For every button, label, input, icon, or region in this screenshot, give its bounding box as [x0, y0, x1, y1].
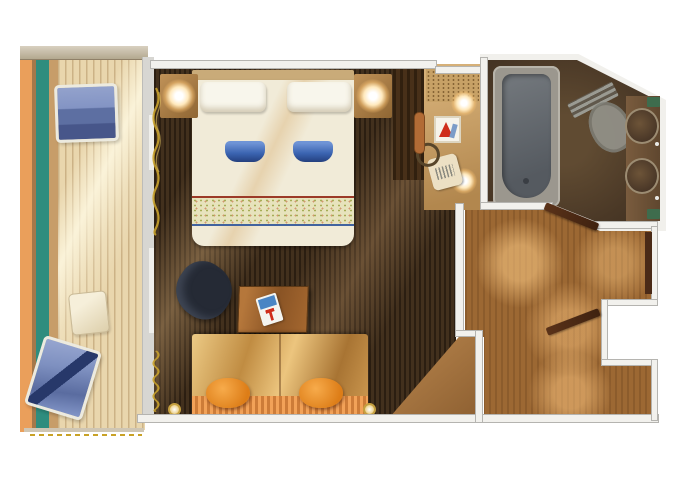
cabinet-knob: [655, 196, 659, 200]
cabinet-knob: [655, 142, 659, 146]
balcony-top-partition: [20, 46, 148, 60]
wall-vanity-bathroom: [480, 57, 488, 210]
green-towel-top: [647, 97, 660, 107]
vanity-lamp-top: [451, 90, 477, 116]
closet-door: [645, 232, 652, 294]
blue-towel-left: [225, 141, 265, 162]
bed-runner: [192, 196, 354, 226]
curtain-decoration-top: [150, 86, 162, 236]
balcony-threshold-dashes: [30, 434, 142, 436]
wall-hallway-right-mid: [601, 299, 608, 365]
wall-top-cabin: [150, 60, 437, 69]
wall-bottom: [137, 414, 659, 423]
writing-desk: [237, 286, 309, 333]
framed-picture: [434, 116, 461, 143]
wall-top-vanity: [435, 66, 485, 74]
vanity-nook: [424, 64, 481, 210]
lamp-left: [162, 79, 196, 113]
magazine: [255, 292, 283, 326]
blue-towel-right: [293, 141, 333, 162]
wall-hallway-step: [602, 299, 658, 306]
lamp-right: [356, 79, 390, 113]
sofa-cushion-split: [279, 334, 281, 396]
wall-corridor-left: [475, 330, 483, 423]
sofa: [192, 334, 368, 418]
balcony-outer-rail-stripe: [20, 55, 32, 432]
floor-plan: [0, 0, 680, 486]
balcony-bottom-partition: [24, 428, 144, 432]
wall-entry-step: [601, 359, 658, 366]
hallway-floor: [465, 208, 657, 418]
sink-bottom: [625, 158, 659, 194]
curtain-decoration-bottom: [150, 350, 162, 412]
wall-entry-right: [651, 359, 658, 421]
magazine-cover-art: [258, 295, 277, 310]
wall-hallway-right-upper: [651, 226, 658, 306]
wall-bathroom-bottom-right: [593, 221, 658, 229]
bed-pillow-left: [200, 82, 266, 112]
lounge-chair-top: [54, 83, 119, 143]
bed-pillow-right: [287, 82, 351, 112]
bathtub-basin: [502, 74, 551, 198]
wall-bathroom-bottom-left: [480, 202, 553, 210]
vanity-stool: [414, 112, 425, 154]
balcony-side-table: [68, 290, 110, 336]
bathtub-drain: [523, 178, 529, 184]
sofa-pillow-left: [206, 378, 250, 408]
wall-cabin-hallway: [455, 203, 464, 337]
sink-top: [625, 108, 659, 144]
handbag-tag: [435, 164, 455, 180]
magazine-cover-letter: [265, 308, 277, 322]
picture-blue-motif: [449, 124, 457, 139]
sofa-pillow-right: [299, 378, 343, 408]
green-towel-bottom: [647, 209, 660, 219]
